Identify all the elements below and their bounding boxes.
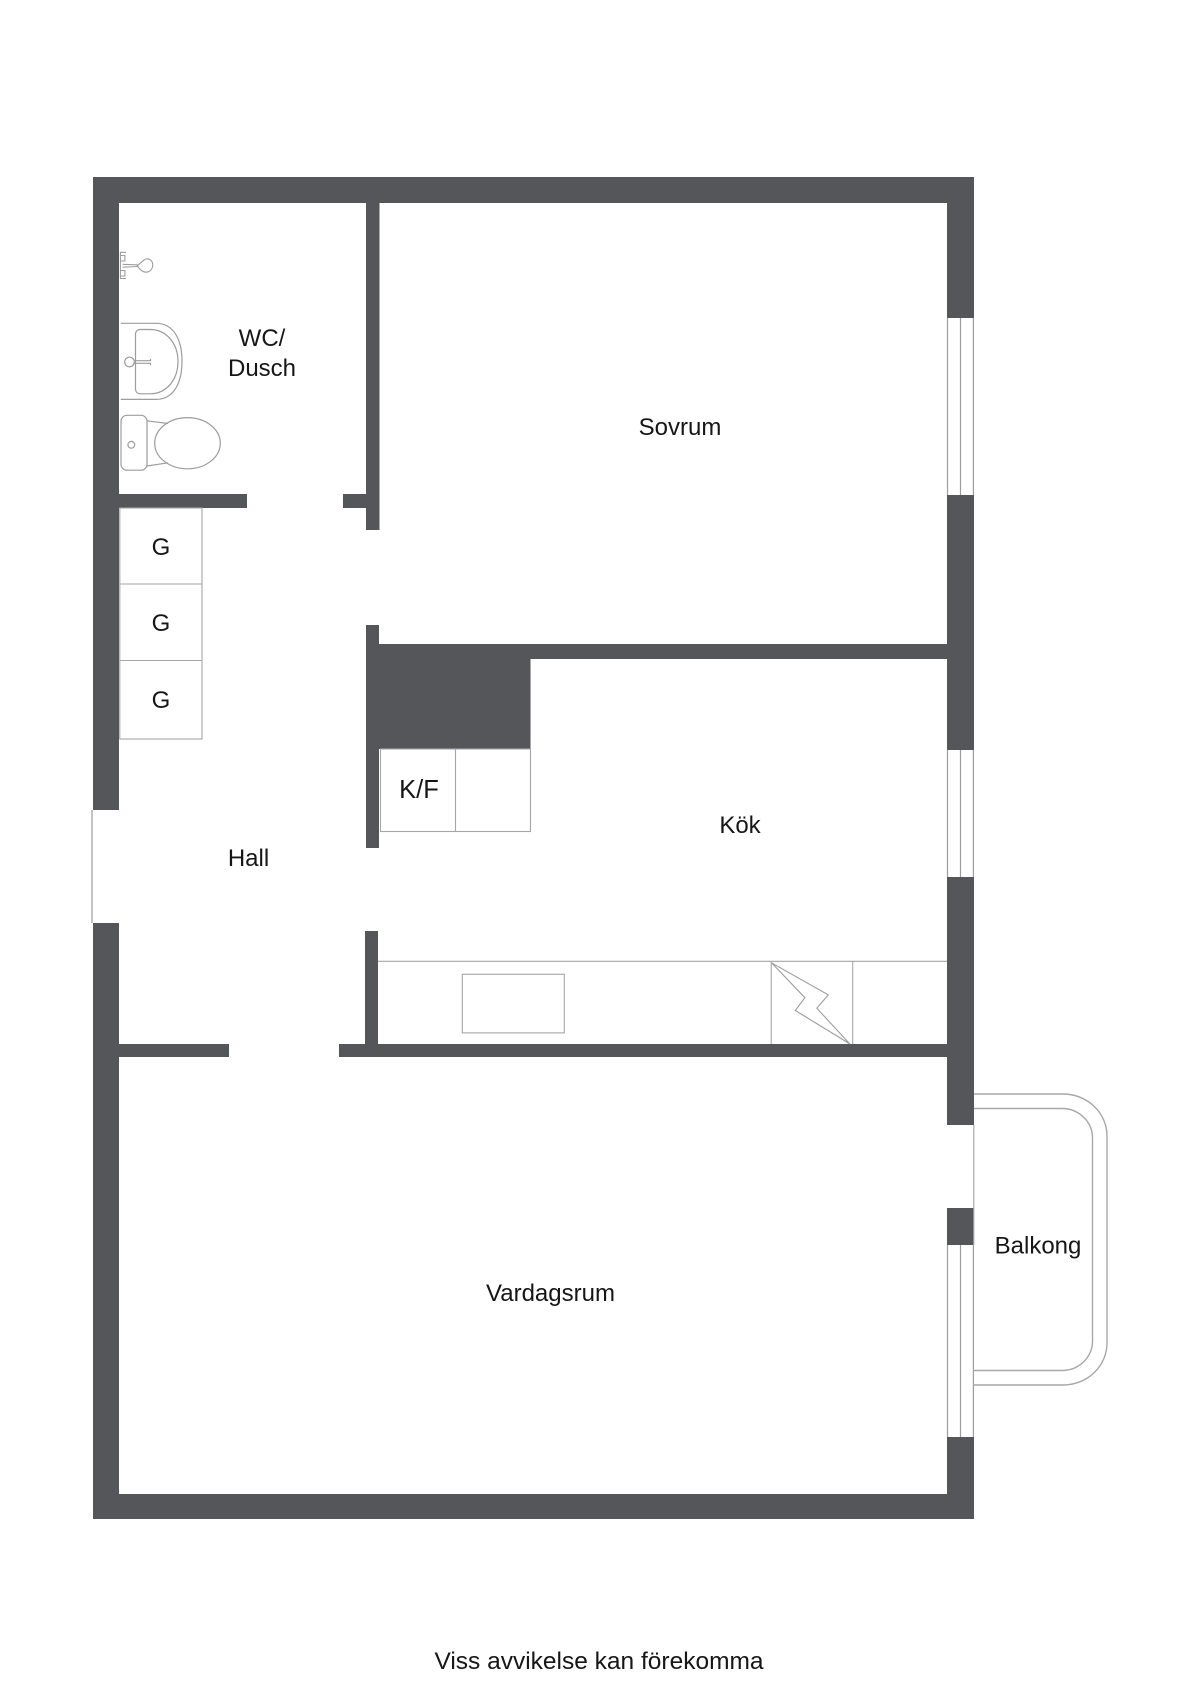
svg-text:G: G <box>152 534 171 561</box>
svg-text:Hall: Hall <box>228 845 269 872</box>
svg-text:G: G <box>152 687 171 714</box>
svg-text:G: G <box>152 610 171 637</box>
svg-text:Kök: Kök <box>719 812 761 839</box>
svg-text:Viss avvikelse kan förekomma: Viss avvikelse kan förekomma <box>434 1648 763 1675</box>
svg-text:Dusch: Dusch <box>228 355 296 382</box>
svg-text:Vardagsrum: Vardagsrum <box>486 1280 615 1307</box>
svg-text:WC/: WC/ <box>239 325 286 352</box>
svg-text:Sovrum: Sovrum <box>639 414 722 441</box>
svg-text:K/F: K/F <box>399 776 439 804</box>
svg-text:Balkong: Balkong <box>995 1233 1082 1260</box>
